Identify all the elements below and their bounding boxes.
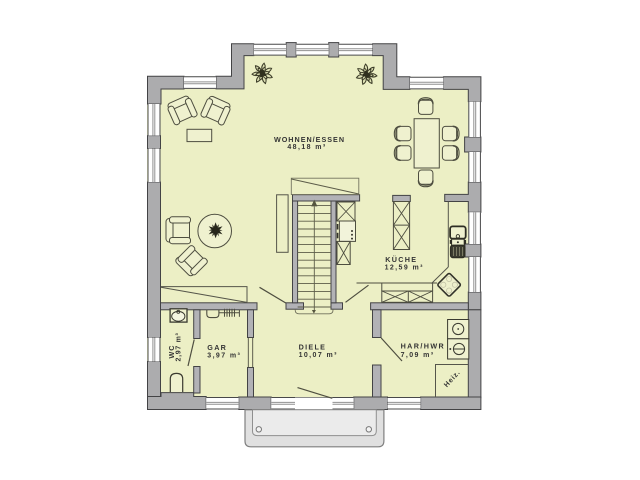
svg-text:HAR/HWR: HAR/HWR (401, 342, 446, 351)
svg-text:WOHNEN/ESSEN: WOHNEN/ESSEN (274, 135, 345, 144)
svg-text:3,97 m³: 3,97 m³ (207, 352, 241, 359)
svg-text:10,07 m³: 10,07 m³ (299, 352, 338, 359)
svg-text:7,09 m³: 7,09 m³ (401, 352, 435, 359)
svg-text:GAR: GAR (207, 343, 227, 352)
svg-text:12,59 m³: 12,59 m³ (385, 265, 424, 272)
svg-text:DIELE: DIELE (299, 342, 327, 351)
svg-text:2,97 m³: 2,97 m³ (175, 332, 182, 361)
svg-text:48,18 m³: 48,18 m³ (287, 144, 326, 151)
svg-text:KÜCHE: KÜCHE (385, 255, 417, 264)
